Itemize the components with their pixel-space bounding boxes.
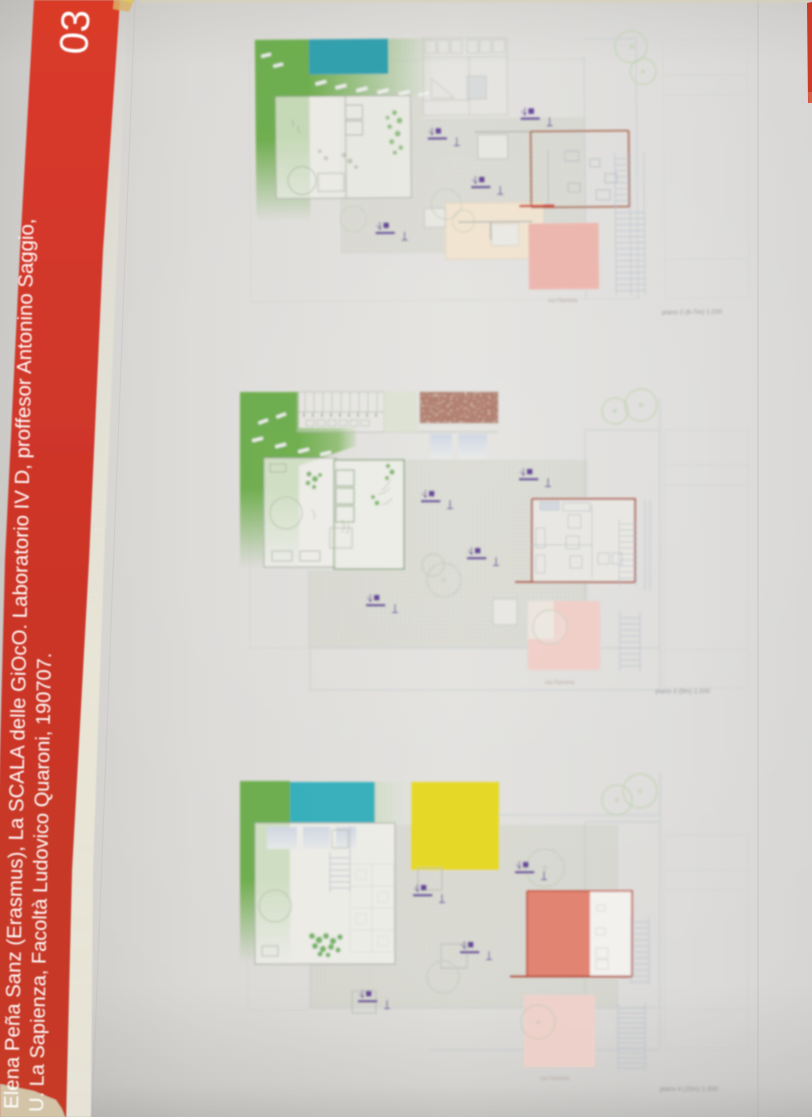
svg-text:via Flaminia: via Flaminia: [545, 680, 575, 686]
svg-text:piano 4 (15m) 1:200: piano 4 (15m) 1:200: [660, 1086, 719, 1093]
svg-text:03: 03: [52, 8, 99, 55]
svg-text:piano 2 (6-7m) 1:200: piano 2 (6-7m) 1:200: [662, 309, 723, 317]
svg-text:via Flaminia: via Flaminia: [540, 1076, 570, 1082]
svg-text:via Flaminia: via Flaminia: [548, 298, 578, 304]
svg-text:piano 3 (9m) 1:200: piano 3 (9m) 1:200: [655, 688, 710, 695]
